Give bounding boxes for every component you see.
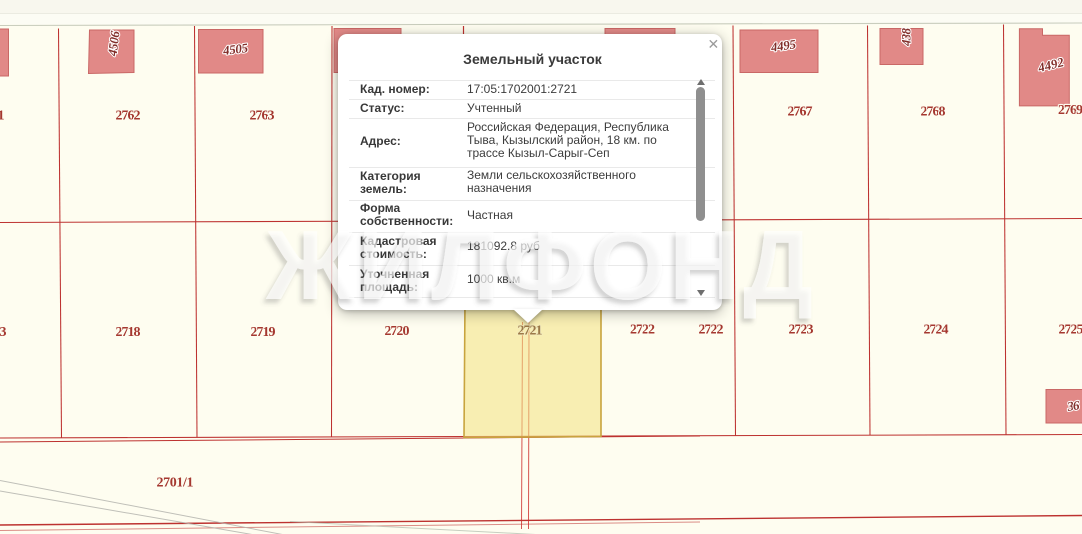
svg-text:ЖИЛФОНД: ЖИЛФОНД <box>265 210 813 320</box>
